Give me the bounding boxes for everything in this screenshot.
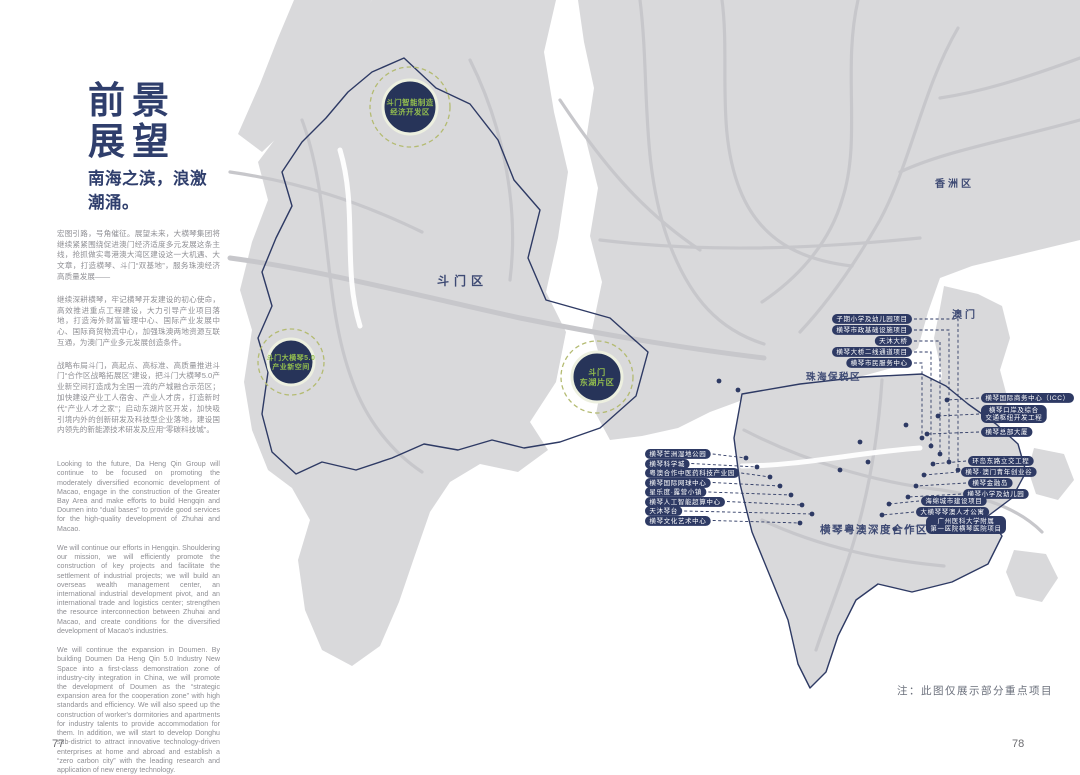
project-label: 环岛东路立交工程 [968, 456, 1034, 466]
project-label: 广州医科大学附属第一医院横琴医院项目 [926, 516, 1006, 534]
page-number-right: 78 [1012, 738, 1024, 750]
project-label: 星乐度·露营小镇 [645, 487, 706, 497]
en-paragraph-2: We will continue our efforts in Hengqin.… [57, 544, 220, 636]
en-paragraph-1: Looking to the future, Da Heng Qin Group… [57, 460, 220, 534]
cn-paragraph-2: 继续深耕横琴，牢记横琴开发建设的初心使命，高效推进重点工程建设，大力引导产业项目… [57, 295, 220, 349]
section-subtitle: 南海之滨，浪激潮涌。 [88, 165, 220, 213]
project-label: 横琴芒洲湿地公园 [645, 449, 711, 459]
title-line-2: 展望 [88, 121, 176, 162]
cn-paragraph-3: 战略布局斗门，高起点、高标准、高质量推进斗门“合作区战略拓展区”建设，把斗门大横… [57, 361, 220, 436]
page-number-left: 77 [52, 738, 64, 750]
project-label: 天沐大桥 [875, 336, 912, 346]
region-label-zhuhai-free-trade-zone: 珠海保税区 [806, 369, 861, 383]
report-page-spread: 斗门智能制造经济开发区斗门大横琴5.0产业新空间斗门东湖片区 斗门区香洲区澳门珠… [0, 0, 1080, 775]
article-column: 前景展望 南海之滨，浪激潮涌。 宏图引路，号角催征。展望未来，大横琴集团将继续紧… [57, 80, 220, 775]
project-label: 横琴市民服务中心 [846, 358, 912, 368]
title-line-1: 前景 [88, 80, 176, 121]
region-label-hengqin-cooperation-zone: 横琴粤澳深度合作区 [820, 522, 928, 537]
region-label-macao: 澳门 [952, 306, 978, 321]
project-label: 横琴口岸及综合交通枢纽开发工程 [981, 405, 1047, 423]
map-note: 注：此图仅展示部分重点项目 [897, 683, 1053, 698]
region-label-doumen: 斗门区 [437, 272, 488, 289]
project-label: 横琴大桥二线通道项目 [832, 347, 912, 357]
project-label: 天沐琴台 [645, 506, 682, 516]
project-label: 横琴金融岛 [968, 478, 1012, 488]
project-label: 横琴市政基础设施项目 [832, 325, 912, 335]
project-label: 横琴总部大厦 [981, 427, 1032, 437]
project-label: 粤澳合作中医药科技产业园 [645, 468, 739, 478]
en-paragraph-3: We will continue the expansion in Doumen… [57, 646, 220, 775]
page-title: 前景展望 [88, 80, 220, 163]
project-label: 横琴国际商务中心（ICC） [981, 393, 1074, 403]
project-label: 横琴文化艺术中心 [645, 516, 711, 526]
cn-paragraph-1: 宏图引路，号角催征。展望未来，大横琴集团将继续紧紧围绕促进澳门经济适度多元发展这… [57, 229, 220, 283]
project-label: 子期小学及幼儿园项目 [832, 314, 912, 324]
project-label: 横琴·澳门青年创业谷 [961, 467, 1037, 477]
project-label: 海绵城市建设项目 [921, 496, 987, 506]
region-label-xiangzhou: 香洲区 [935, 175, 974, 190]
